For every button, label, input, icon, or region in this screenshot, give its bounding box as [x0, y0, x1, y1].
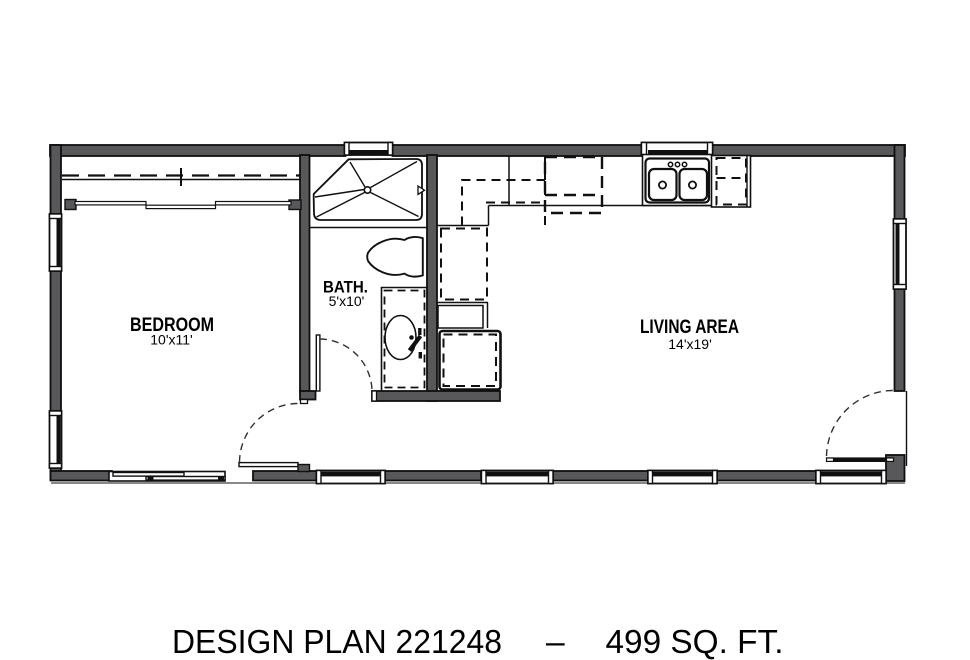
svg-text:–: –: [546, 624, 565, 660]
svg-text:LIVING AREA: LIVING AREA: [640, 317, 739, 338]
svg-text:DESIGN PLAN 221248: DESIGN PLAN 221248: [172, 624, 502, 660]
svg-text:10'x11': 10'x11': [150, 332, 192, 348]
svg-text:14'x19': 14'x19': [668, 336, 712, 352]
svg-text:5'x10': 5'x10': [329, 293, 365, 309]
svg-text:499 SQ. FT.: 499 SQ. FT.: [606, 624, 784, 660]
